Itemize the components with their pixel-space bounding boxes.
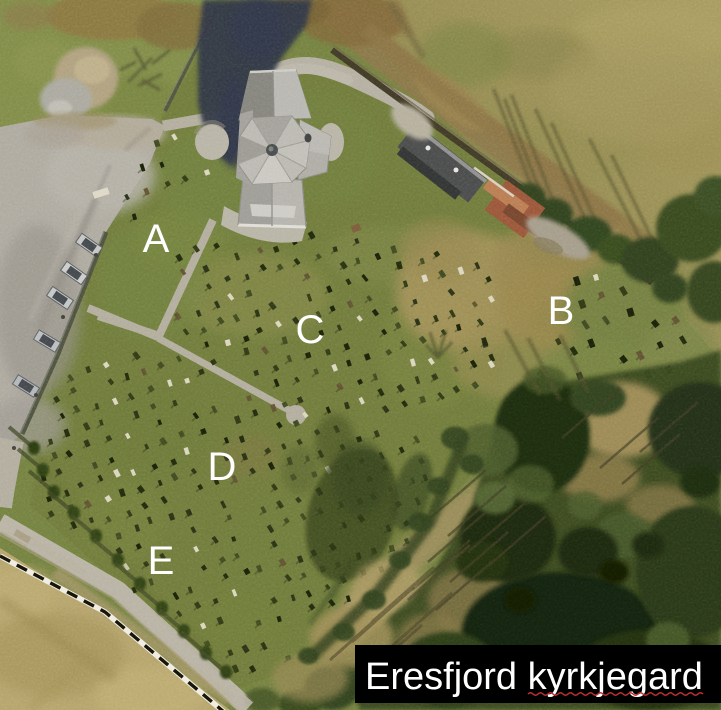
svg-text:D: D [208, 445, 237, 489]
svg-text:A: A [143, 217, 170, 261]
svg-text:C: C [296, 308, 325, 352]
svg-text:E: E [148, 539, 175, 583]
svg-text:Eresfjord kyrkjegard: Eresfjord kyrkjegard [365, 656, 703, 698]
svg-text:B: B [548, 289, 575, 333]
